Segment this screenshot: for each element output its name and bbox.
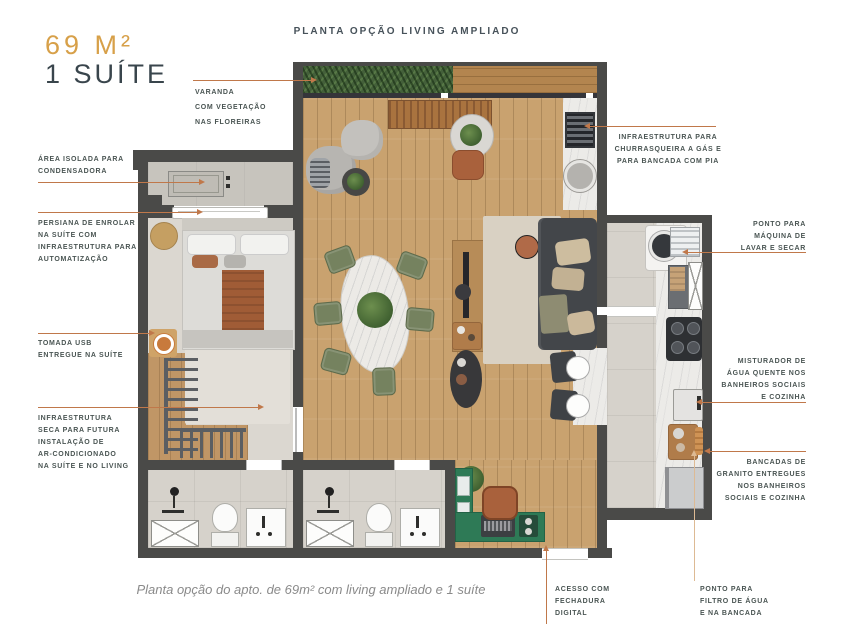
pillow bbox=[240, 234, 289, 255]
faucet bbox=[422, 532, 426, 536]
leader-line bbox=[38, 212, 198, 213]
arrowhead bbox=[199, 179, 205, 185]
side-table-terracotta bbox=[515, 235, 539, 259]
bbq-grill bbox=[565, 112, 595, 148]
pouf-throw bbox=[310, 158, 330, 188]
serving-tray bbox=[452, 322, 482, 350]
arrowhead bbox=[682, 249, 688, 255]
wall bbox=[303, 62, 597, 66]
dining-chair bbox=[405, 307, 435, 332]
shower-tray bbox=[306, 520, 354, 547]
shower-valve bbox=[162, 510, 184, 513]
condenser-unit bbox=[173, 175, 219, 193]
dining-chair bbox=[313, 301, 343, 326]
wall bbox=[588, 548, 612, 558]
arrowhead bbox=[258, 404, 264, 410]
wall bbox=[597, 315, 607, 348]
shower-arm bbox=[173, 496, 175, 508]
wall bbox=[597, 425, 607, 558]
apartment-area: 69 M² bbox=[45, 30, 134, 61]
arrowhead bbox=[149, 330, 155, 336]
shower-icon bbox=[325, 487, 334, 496]
closet-rail bbox=[180, 428, 246, 458]
arrowhead bbox=[691, 450, 697, 456]
arrowhead bbox=[584, 123, 590, 129]
balcony-planter bbox=[303, 64, 453, 93]
towel bbox=[670, 267, 685, 291]
dining-chair bbox=[372, 367, 396, 396]
leader-line bbox=[38, 182, 200, 183]
wall bbox=[138, 548, 542, 558]
bed-blanket bbox=[182, 330, 293, 348]
burner bbox=[671, 322, 684, 335]
faucet bbox=[262, 516, 265, 528]
place-setting bbox=[566, 356, 590, 380]
plant-centerpiece bbox=[357, 292, 393, 328]
apartment-suites: 1 SUÍTE bbox=[45, 59, 168, 90]
faucet bbox=[410, 532, 414, 536]
mug bbox=[457, 326, 465, 334]
wall bbox=[293, 62, 303, 208]
callout-bancadas: BANCADAS DE GRANITO ENTREGUES NOS BANHEI… bbox=[696, 457, 806, 505]
shower-arm bbox=[328, 496, 330, 508]
mug bbox=[468, 334, 475, 341]
callout-varanda: VARANDA COM VEGETAÇÃO NAS FLOREIRAS bbox=[195, 85, 305, 130]
faucet bbox=[416, 516, 419, 528]
terracotta-chair bbox=[452, 150, 484, 180]
sofa-pillow bbox=[554, 238, 591, 266]
plan-title: PLANTA OPÇÃO LIVING AMPLIADO bbox=[252, 26, 562, 37]
place-setting bbox=[566, 394, 590, 418]
bathroom-door bbox=[246, 460, 282, 470]
coffee-table-item bbox=[456, 374, 467, 385]
callout-filtro: PONTO PARA FILTRO DE ÁGUA E NA BANCADA bbox=[700, 584, 795, 620]
speaker bbox=[455, 284, 471, 300]
faucet bbox=[268, 532, 272, 536]
leader-line bbox=[589, 126, 716, 127]
board-bowl bbox=[673, 428, 684, 439]
armchair-pouf bbox=[341, 120, 383, 160]
burner bbox=[687, 322, 700, 335]
wall bbox=[597, 215, 712, 223]
ironing-cabinet bbox=[688, 262, 703, 310]
wall bbox=[597, 62, 607, 223]
pillow bbox=[187, 234, 236, 255]
floor-plan-page: 69 M² 1 SUÍTE PLANTA OPÇÃO LIVING AMPLIA… bbox=[0, 0, 857, 631]
callout-misturador: MISTURADOR DE ÁGUA QUENTE NOS BANHEIROS … bbox=[696, 356, 806, 404]
leader-line bbox=[709, 451, 806, 452]
callout-tomada-usb: TOMADA USB ENTREGUE NA SUÍTE bbox=[38, 338, 178, 362]
bathroom-door bbox=[394, 460, 430, 470]
leader-line bbox=[546, 550, 547, 624]
desk-shelf bbox=[457, 476, 470, 496]
coffee-table-item bbox=[457, 358, 466, 367]
wall bbox=[597, 223, 607, 307]
callout-fechadura: ACESSO COM FECHADURA DIGITAL bbox=[555, 584, 635, 620]
shower-tray bbox=[151, 520, 199, 547]
condenser-valve bbox=[226, 176, 230, 180]
arrowhead bbox=[311, 77, 317, 83]
callout-churrasqueira: INFRAESTRUTURA PARA CHURRASQUEIRA A GÁS … bbox=[608, 132, 728, 168]
toilet-tank bbox=[211, 532, 239, 547]
bed-throw bbox=[222, 270, 264, 330]
accent-pillow bbox=[192, 255, 218, 268]
arrowhead bbox=[543, 545, 549, 551]
sofa-throw bbox=[539, 294, 570, 334]
desk-chair bbox=[482, 486, 518, 520]
plan-caption: Planta opção do apto. de 69m² com living… bbox=[81, 582, 541, 597]
balcony-deck bbox=[453, 64, 597, 93]
vanity-sink bbox=[400, 508, 440, 547]
toilet-tank bbox=[365, 532, 393, 547]
callout-infra-seca: INFRAESTRUTURA SECA PARA FUTURA INSTALAÇ… bbox=[38, 413, 188, 473]
shower-valve bbox=[317, 510, 339, 513]
wall bbox=[445, 460, 455, 558]
accent-pillow bbox=[224, 255, 246, 268]
laptop-keyboard bbox=[484, 521, 512, 531]
callout-persiana: PERSIANA DE ENROLAR NA SUÍTE COM INFRAES… bbox=[38, 218, 178, 266]
callout-condensadora: ÁREA ISOLADA PARA CONDENSADORA bbox=[38, 154, 168, 178]
leader-line bbox=[193, 80, 312, 81]
board-bowl bbox=[676, 443, 685, 452]
toilet bbox=[366, 503, 392, 532]
bbq-sink bbox=[564, 160, 596, 192]
desk-appliance-knob bbox=[525, 528, 532, 535]
plant bbox=[460, 124, 482, 146]
callout-lavar-secar: PONTO PARA MÁQUINA DE LAVAR E SECAR bbox=[696, 219, 806, 255]
suite-door bbox=[295, 408, 297, 452]
burner bbox=[687, 341, 700, 354]
sofa-pillow bbox=[566, 310, 595, 336]
vanity-sink bbox=[246, 508, 286, 547]
wall bbox=[293, 470, 303, 558]
condenser-valve bbox=[226, 184, 230, 188]
desk-appliance-knob bbox=[525, 518, 532, 525]
arrowhead bbox=[704, 448, 710, 454]
shower-icon bbox=[170, 487, 179, 496]
arrowhead bbox=[197, 209, 203, 215]
faucet bbox=[256, 532, 260, 536]
leader-line bbox=[38, 333, 150, 334]
kitchen-door bbox=[607, 306, 656, 317]
sofa-pillow bbox=[551, 267, 585, 292]
burner bbox=[671, 341, 684, 354]
toilet bbox=[212, 503, 238, 532]
leader-line bbox=[38, 407, 259, 408]
plant bbox=[347, 173, 364, 190]
